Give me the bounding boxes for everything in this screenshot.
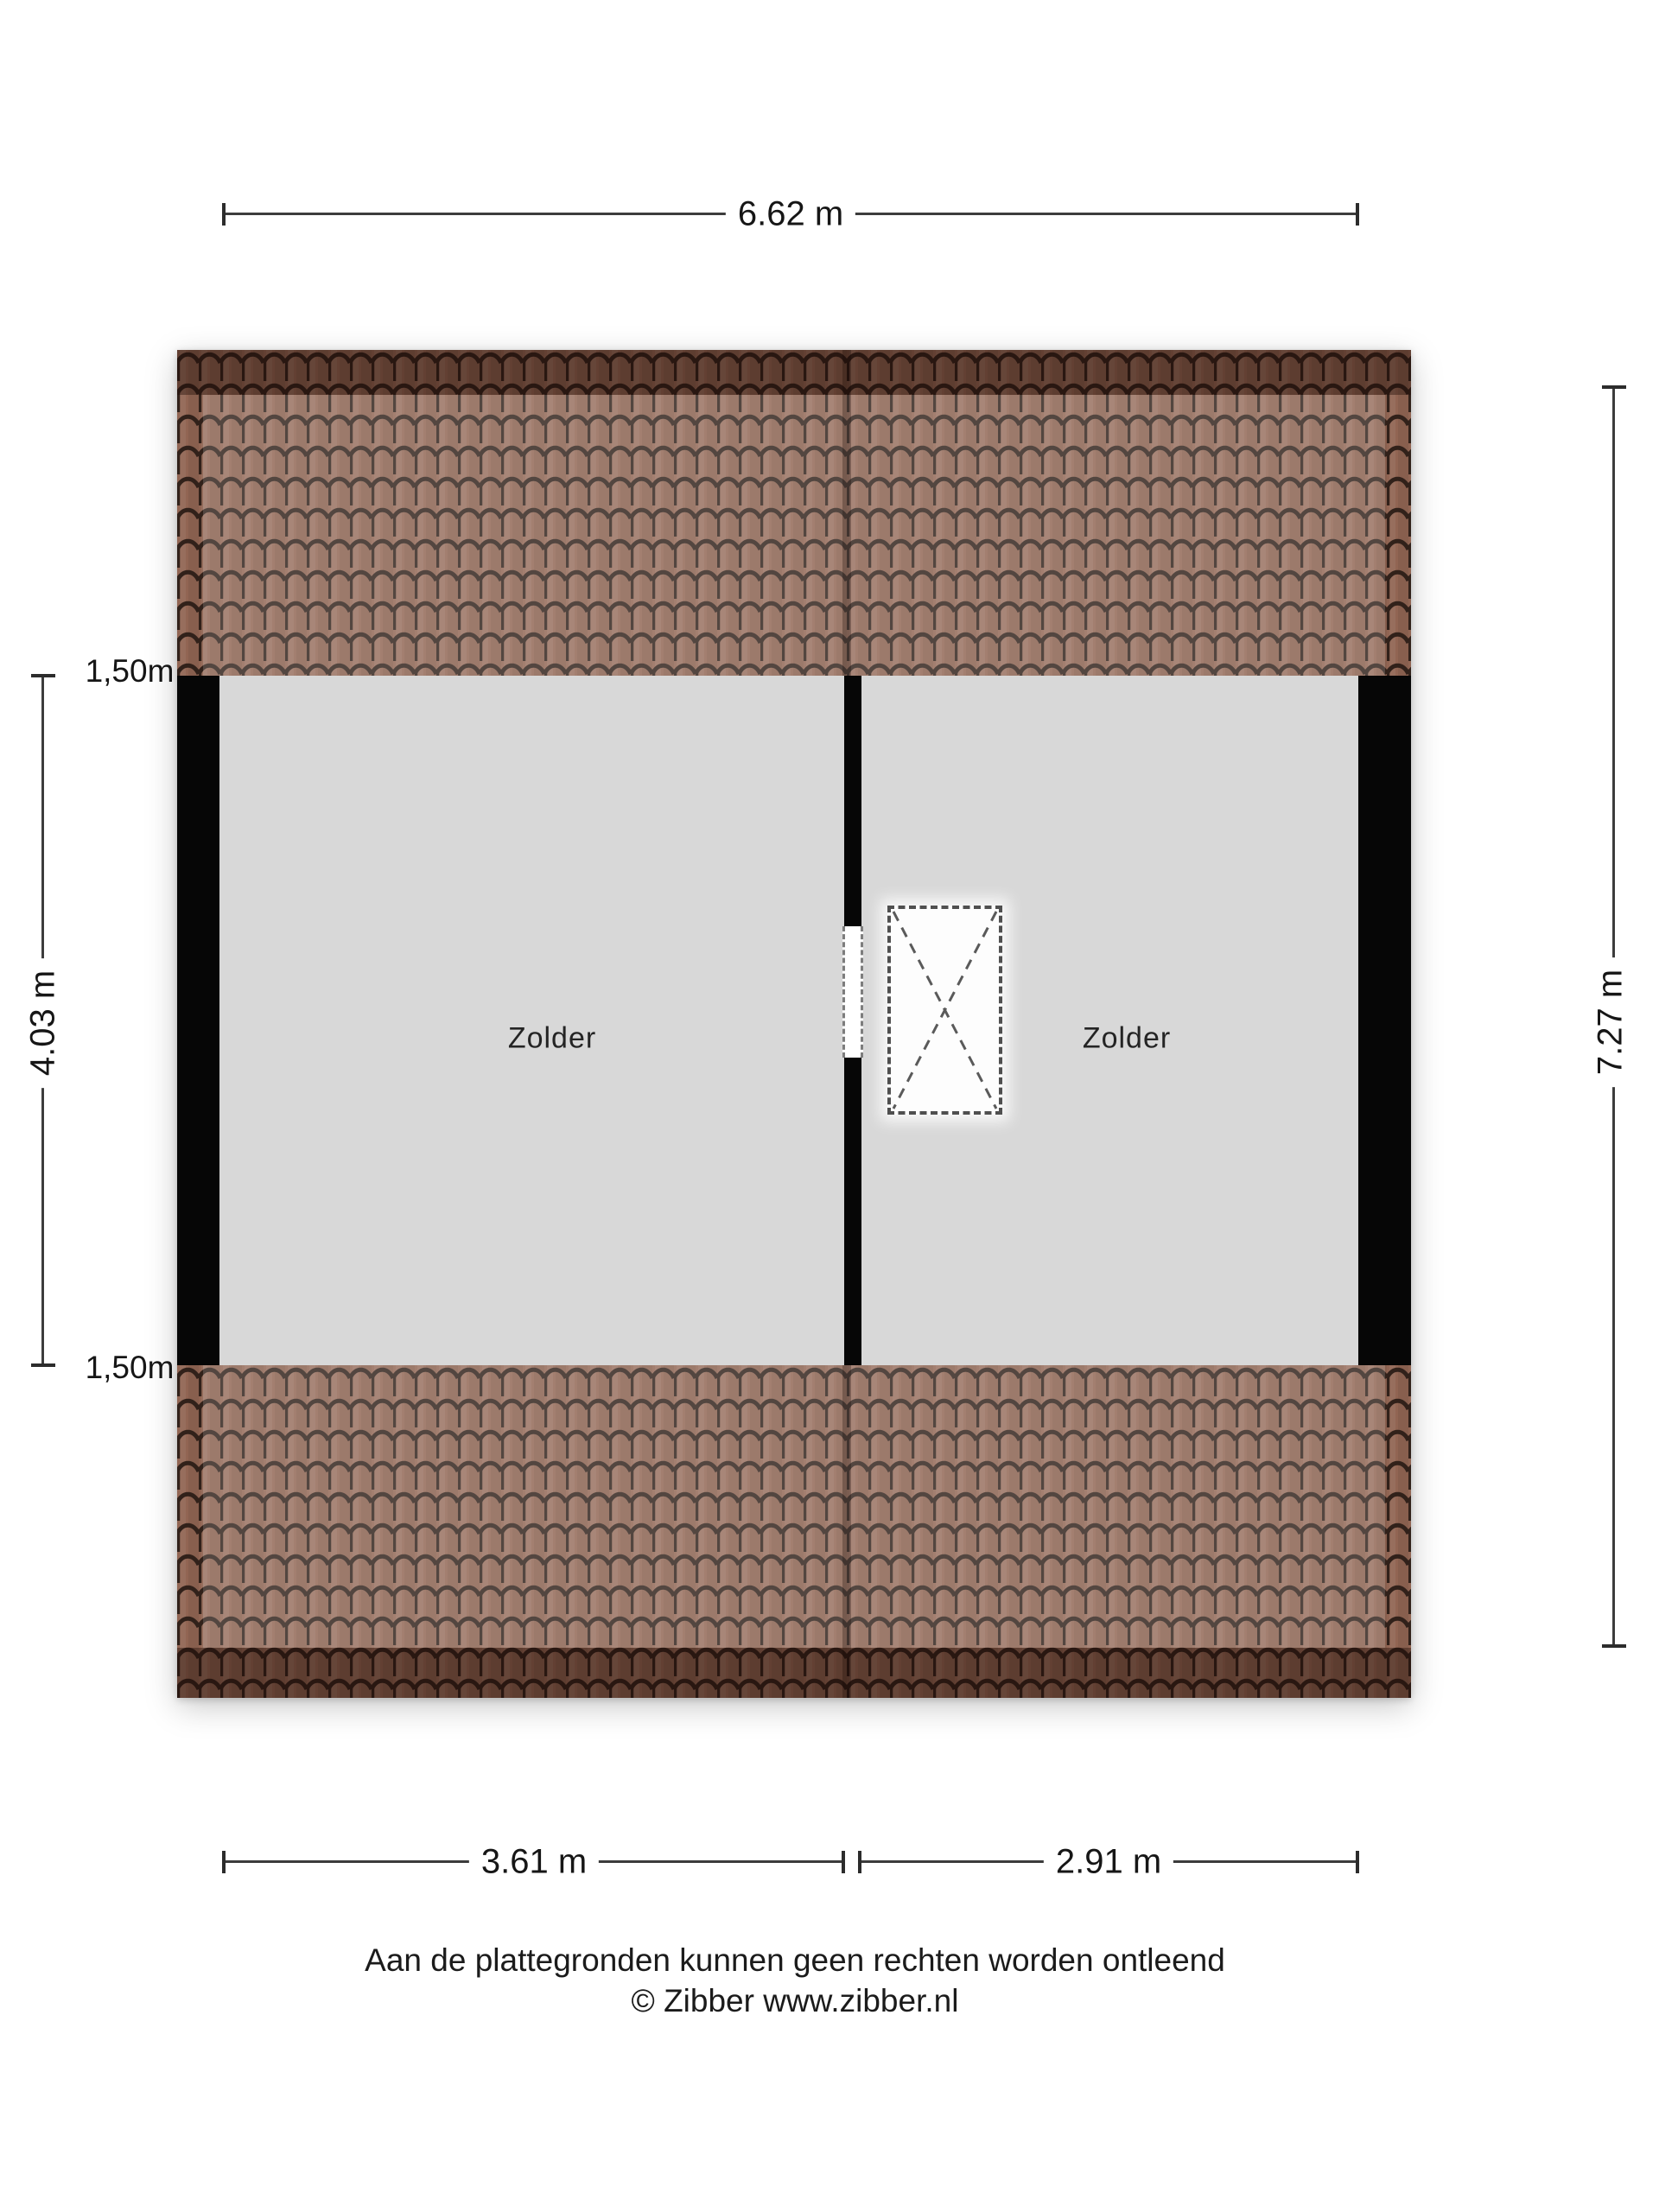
dim-top-label: 6.62 m [726,195,855,234]
dim-bottom-tick-1 [222,1851,226,1873]
room-left-floor [219,676,844,1365]
dim-top-tick-left [222,203,226,226]
dim-top-tick-right [1356,203,1359,226]
footer-copyright: © Zibber www.zibber.nl [0,1983,1590,2019]
door-opening [842,926,863,1058]
stair-x-icon [891,909,999,1111]
dim-left-tick-top [31,674,55,677]
dim-right-label: 7.27 m [1592,957,1630,1087]
dim-bottom-tick-2 [842,1851,845,1873]
stair-opening [887,906,1002,1115]
roof-bottom-tiles [177,1365,1411,1698]
dim-bottom-tick-4 [1356,1851,1359,1873]
roof-top-tiles [177,350,1411,676]
knee-wall-label-bottom: 1,50m [86,1350,175,1386]
dim-right-tick-bottom [1602,1644,1626,1648]
wall-right [1358,676,1411,1365]
dim-left-tick-bottom [31,1363,55,1367]
room-label-left: Zolder [508,1022,596,1056]
dim-right-tick-top [1602,385,1626,389]
dim-left-label: 4.03 m [24,958,63,1088]
wall-left [177,676,219,1365]
room-label-right: Zolder [1083,1022,1171,1056]
knee-wall-label-top: 1,50m [86,653,175,690]
dim-bottom-right-label: 2.91 m [1044,1843,1173,1882]
footer-disclaimer: Aan de plattegronden kunnen geen rechten… [0,1942,1590,1979]
dim-bottom-left-label: 3.61 m [469,1843,599,1882]
floor-plan: Zolder Zolder [177,350,1411,1698]
dim-bottom-tick-3 [858,1851,861,1873]
